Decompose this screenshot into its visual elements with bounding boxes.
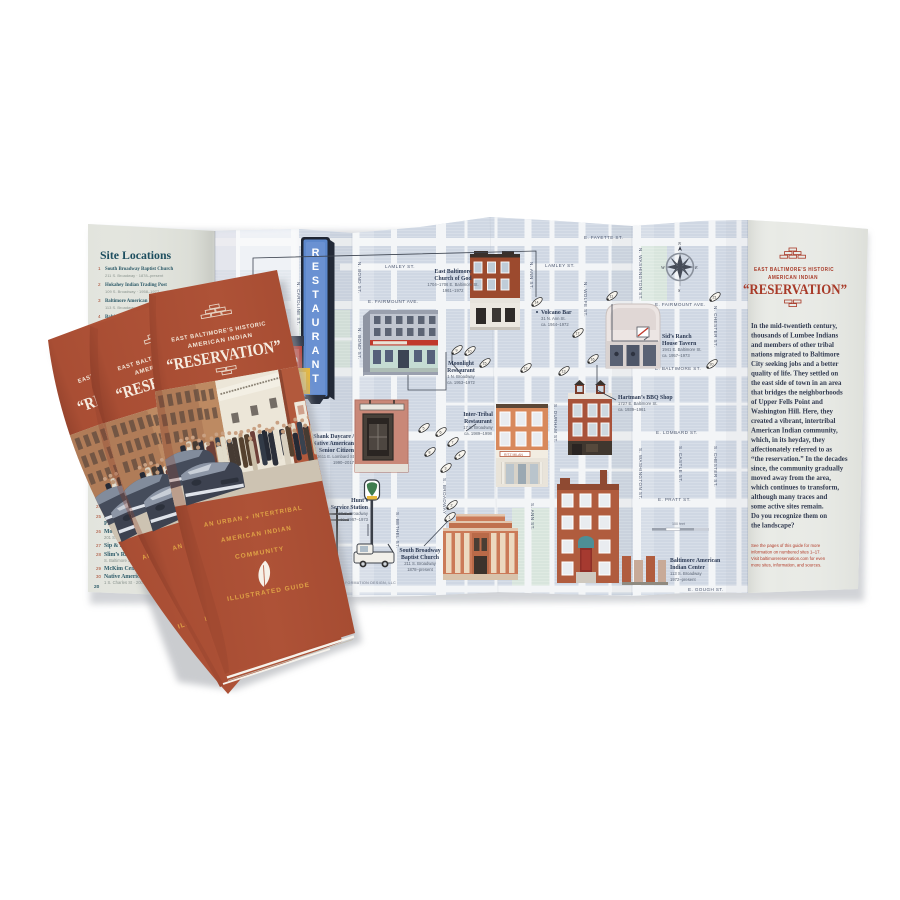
svg-text:1972–present: 1972–present [670, 577, 696, 582]
svg-text:which continues to transform,: which continues to transform, [751, 485, 839, 492]
svg-text:the east side of town in an ar: the east side of town in an area [751, 380, 842, 387]
svg-text:E. FAYETTE ST.: E. FAYETTE ST. [584, 235, 623, 240]
svg-text:ca. 1939–1961: ca. 1939–1961 [618, 407, 646, 412]
svg-text:Visit baltimorereservation.com: Visit baltimorereservation.com for even [751, 556, 826, 561]
svg-text:moved away from the area,: moved away from the area, [751, 475, 831, 482]
svg-text:9: 9 [456, 349, 458, 353]
svg-text:more sites, information, and s: more sites, information, and sources. [751, 563, 821, 568]
svg-text:1990–2017: 1990–2017 [333, 460, 355, 465]
svg-text:information on numbered sites: information on numbered sites 1–17. [751, 550, 821, 555]
svg-text:ca. 1944–1972: ca. 1944–1972 [541, 322, 569, 327]
svg-text:20: 20 [94, 584, 100, 590]
svg-text:211 S. Broadway: 211 S. Broadway [404, 561, 436, 566]
svg-text:Site Locations: Site Locations [100, 248, 172, 262]
svg-text:A: A [312, 345, 320, 357]
svg-text:quality of life. They settled: quality of life. They settled on [751, 371, 838, 378]
svg-text:100 S. Broadway: 100 S. Broadway [336, 511, 369, 516]
svg-text:Do you recognize them on: Do you recognize them on [751, 513, 827, 520]
svg-text:13: 13 [562, 370, 566, 374]
svg-text:of Upper Fells Point and: of Upper Fells Point and [751, 399, 823, 406]
svg-text:17 S. Broadway: 17 S. Broadway [463, 425, 493, 430]
svg-text:affectionately referred to as: affectionately referred to as [751, 447, 832, 454]
svg-text:Hokahey Indian Trading Post: Hokahey Indian Trading Post [105, 283, 167, 288]
svg-text:4: 4 [459, 454, 461, 458]
svg-text:20: 20 [710, 363, 714, 367]
svg-text:R: R [312, 331, 320, 343]
svg-text:Inter-Tribal: Inter-Tribal [463, 412, 493, 418]
svg-text:In the mid-twentieth century,: In the mid-twentieth century, [751, 323, 837, 330]
svg-text:7: 7 [452, 441, 454, 445]
svg-text:ca. 1989–1998: ca. 1989–1998 [464, 431, 492, 436]
svg-text:1961–1972: 1961–1972 [443, 288, 465, 293]
svg-text:1704–1706 E. Baltimore St.: 1704–1706 E. Baltimore St. [427, 282, 478, 287]
svg-text:the landscape?: the landscape? [751, 523, 795, 530]
svg-text:1: 1 [98, 266, 101, 271]
svg-text:created a vibrant, intertribal: created a vibrant, intertribal [751, 418, 836, 425]
svg-text:31 N. Ann St.: 31 N. Ann St. [541, 316, 566, 321]
svg-text:10: 10 [468, 350, 472, 354]
svg-text:EAST BALTIMORE’S HISTORIC: EAST BALTIMORE’S HISTORIC [754, 267, 834, 273]
svg-text:Sid’s Ranch: Sid’s Ranch [662, 334, 692, 340]
svg-text:S. DURHAM ST.: S. DURHAM ST. [553, 404, 558, 443]
svg-text:City seeking jobs and a better: City seeking jobs and a better [751, 361, 838, 368]
svg-text:E. BALTIMORE ST.: E. BALTIMORE ST. [655, 366, 701, 371]
svg-text:1 N. Broadway: 1 N. Broadway [447, 374, 475, 379]
svg-text:100 feet: 100 feet [672, 522, 685, 526]
svg-text:South Broadway: South Broadway [399, 548, 440, 554]
svg-text:S. WASHINGTON ST.: S. WASHINGTON ST. [638, 448, 643, 500]
svg-text:8: 8 [429, 451, 431, 455]
svg-text:since, the community gradually: since, the community gradually [751, 466, 844, 473]
svg-text:some active sites remain.: some active sites remain. [751, 504, 824, 511]
svg-text:E: E [694, 265, 698, 270]
svg-text:E: E [312, 261, 319, 273]
svg-text:ca. 1953–1972: ca. 1953–1972 [447, 380, 475, 385]
svg-text:U: U [312, 317, 320, 329]
svg-text:Moonlight: Moonlight [448, 361, 474, 367]
svg-text:N. BOND ST.: N. BOND ST. [357, 328, 362, 359]
svg-text:3: 3 [445, 467, 447, 471]
svg-text:T: T [312, 289, 319, 301]
svg-text:“RESERVATION”: “RESERVATION” [743, 281, 847, 298]
svg-text:E. FAIRMOUNT AVE.: E. FAIRMOUNT AVE. [368, 299, 419, 304]
svg-text:South Broadway Baptist Church: South Broadway Baptist Church [105, 267, 173, 272]
svg-text:S. BETHEL ST.: S. BETHEL ST. [395, 512, 400, 548]
svg-text:S. BROADWAY: S. BROADWAY [442, 478, 447, 514]
svg-text:LAMLEY ST.: LAMLEY ST. [385, 264, 415, 269]
svg-text:15: 15 [483, 362, 487, 366]
svg-text:S. ANN ST.: S. ANN ST. [530, 503, 535, 530]
svg-text:1941 E. Baltimore St.: 1941 E. Baltimore St. [662, 347, 702, 352]
svg-text:2: 2 [98, 282, 101, 287]
svg-text:S. CHESTER ST.: S. CHESTER ST. [713, 446, 718, 487]
svg-text:N. WOLFE ST.: N. WOLFE ST. [583, 282, 588, 317]
svg-text:R: R [312, 247, 320, 259]
svg-text:LAMLEY ST.: LAMLEY ST. [545, 263, 575, 268]
svg-text:5: 5 [423, 427, 425, 431]
svg-text:Baltimore American: Baltimore American [670, 558, 721, 564]
svg-text:E. PRATT ST.: E. PRATT ST. [658, 497, 691, 502]
svg-text:ca. 1957–1973: ca. 1957–1973 [662, 353, 690, 358]
svg-text:T: T [312, 373, 319, 385]
svg-text:12: 12 [524, 367, 528, 371]
svg-text:21: 21 [713, 296, 717, 300]
svg-text:27: 27 [96, 543, 101, 548]
svg-text:N. ANN ST.: N. ANN ST. [529, 262, 534, 289]
svg-text:211 S. Broadway · 1878–present: 211 S. Broadway · 1878–present [105, 273, 164, 278]
svg-text:14: 14 [535, 301, 539, 305]
svg-text:30: 30 [96, 574, 101, 579]
svg-text:and members of other tribal: and members of other tribal [751, 342, 834, 349]
svg-text:See the pages of this guide fo: See the pages of this guide for more [751, 543, 821, 548]
svg-text:16: 16 [591, 358, 595, 362]
svg-text:1: 1 [449, 516, 451, 520]
svg-text:“the reservation.” In the deca: “the reservation.” In the decades [751, 456, 848, 463]
svg-text:2: 2 [451, 504, 453, 508]
svg-text:Washington Hill. Here, they: Washington Hill. Here, they [751, 409, 834, 416]
svg-text:thousands of Lumbee Indians: thousands of Lumbee Indians [751, 333, 838, 340]
svg-text:that bridges the neighborhoods: that bridges the neighborhoods [751, 390, 843, 397]
svg-text:113 S. Broadway: 113 S. Broadway [670, 571, 702, 576]
svg-text:S. CASTLE ST.: S. CASTLE ST. [678, 446, 683, 483]
svg-text:East Baltimore: East Baltimore [434, 269, 472, 275]
svg-text:ca. 1967–1973: ca. 1967–1973 [340, 517, 368, 522]
svg-text:FORMATION DESIGN, LLC: FORMATION DESIGN, LLC [345, 581, 396, 585]
svg-text:17: 17 [576, 332, 580, 336]
svg-text:N. CHESTER ST.: N. CHESTER ST. [713, 306, 718, 347]
svg-text:E. LOMBARD ST.: E. LOMBARD ST. [656, 430, 698, 435]
svg-text:3: 3 [98, 298, 101, 303]
svg-text:which, in its heyday, they: which, in its heyday, they [751, 437, 825, 444]
svg-text:A: A [312, 303, 320, 315]
svg-text:American Indian community,: American Indian community, [751, 428, 838, 435]
svg-text:N: N [312, 359, 320, 371]
svg-text:S: S [312, 275, 319, 287]
svg-text:26: 26 [96, 529, 101, 534]
svg-text:1878–present: 1878–present [407, 567, 433, 572]
svg-text:1727 E. Baltimore St.: 1727 E. Baltimore St. [618, 401, 658, 406]
svg-text:29: 29 [96, 566, 101, 571]
svg-text:nations migrated to Baltimore: nations migrated to Baltimore [751, 352, 840, 359]
svg-text:N. WASHINGTON ST.: N. WASHINGTON ST. [638, 248, 643, 300]
svg-text:RITZ MILAN: RITZ MILAN [504, 453, 523, 457]
svg-text:25: 25 [96, 514, 101, 519]
svg-text:N. BOND ST.: N. BOND ST. [357, 262, 362, 293]
svg-text:109 S. Broadway · 1958–1977: 109 S. Broadway · 1958–1977 [105, 289, 160, 294]
svg-text:N. CAROLINE ST.: N. CAROLINE ST. [296, 282, 301, 325]
svg-text:4: 4 [98, 314, 101, 319]
svg-text:Hunt’s: Hunt’s [351, 498, 369, 504]
svg-text:11: 11 [610, 295, 614, 299]
svg-text:E. GOUGH ST.: E. GOUGH ST. [688, 587, 724, 592]
svg-text:E. FAIRMOUNT AVE.: E. FAIRMOUNT AVE. [655, 302, 706, 307]
svg-text:28: 28 [96, 552, 101, 557]
svg-text:6: 6 [440, 431, 442, 435]
svg-text:although many traces and: although many traces and [751, 494, 828, 501]
